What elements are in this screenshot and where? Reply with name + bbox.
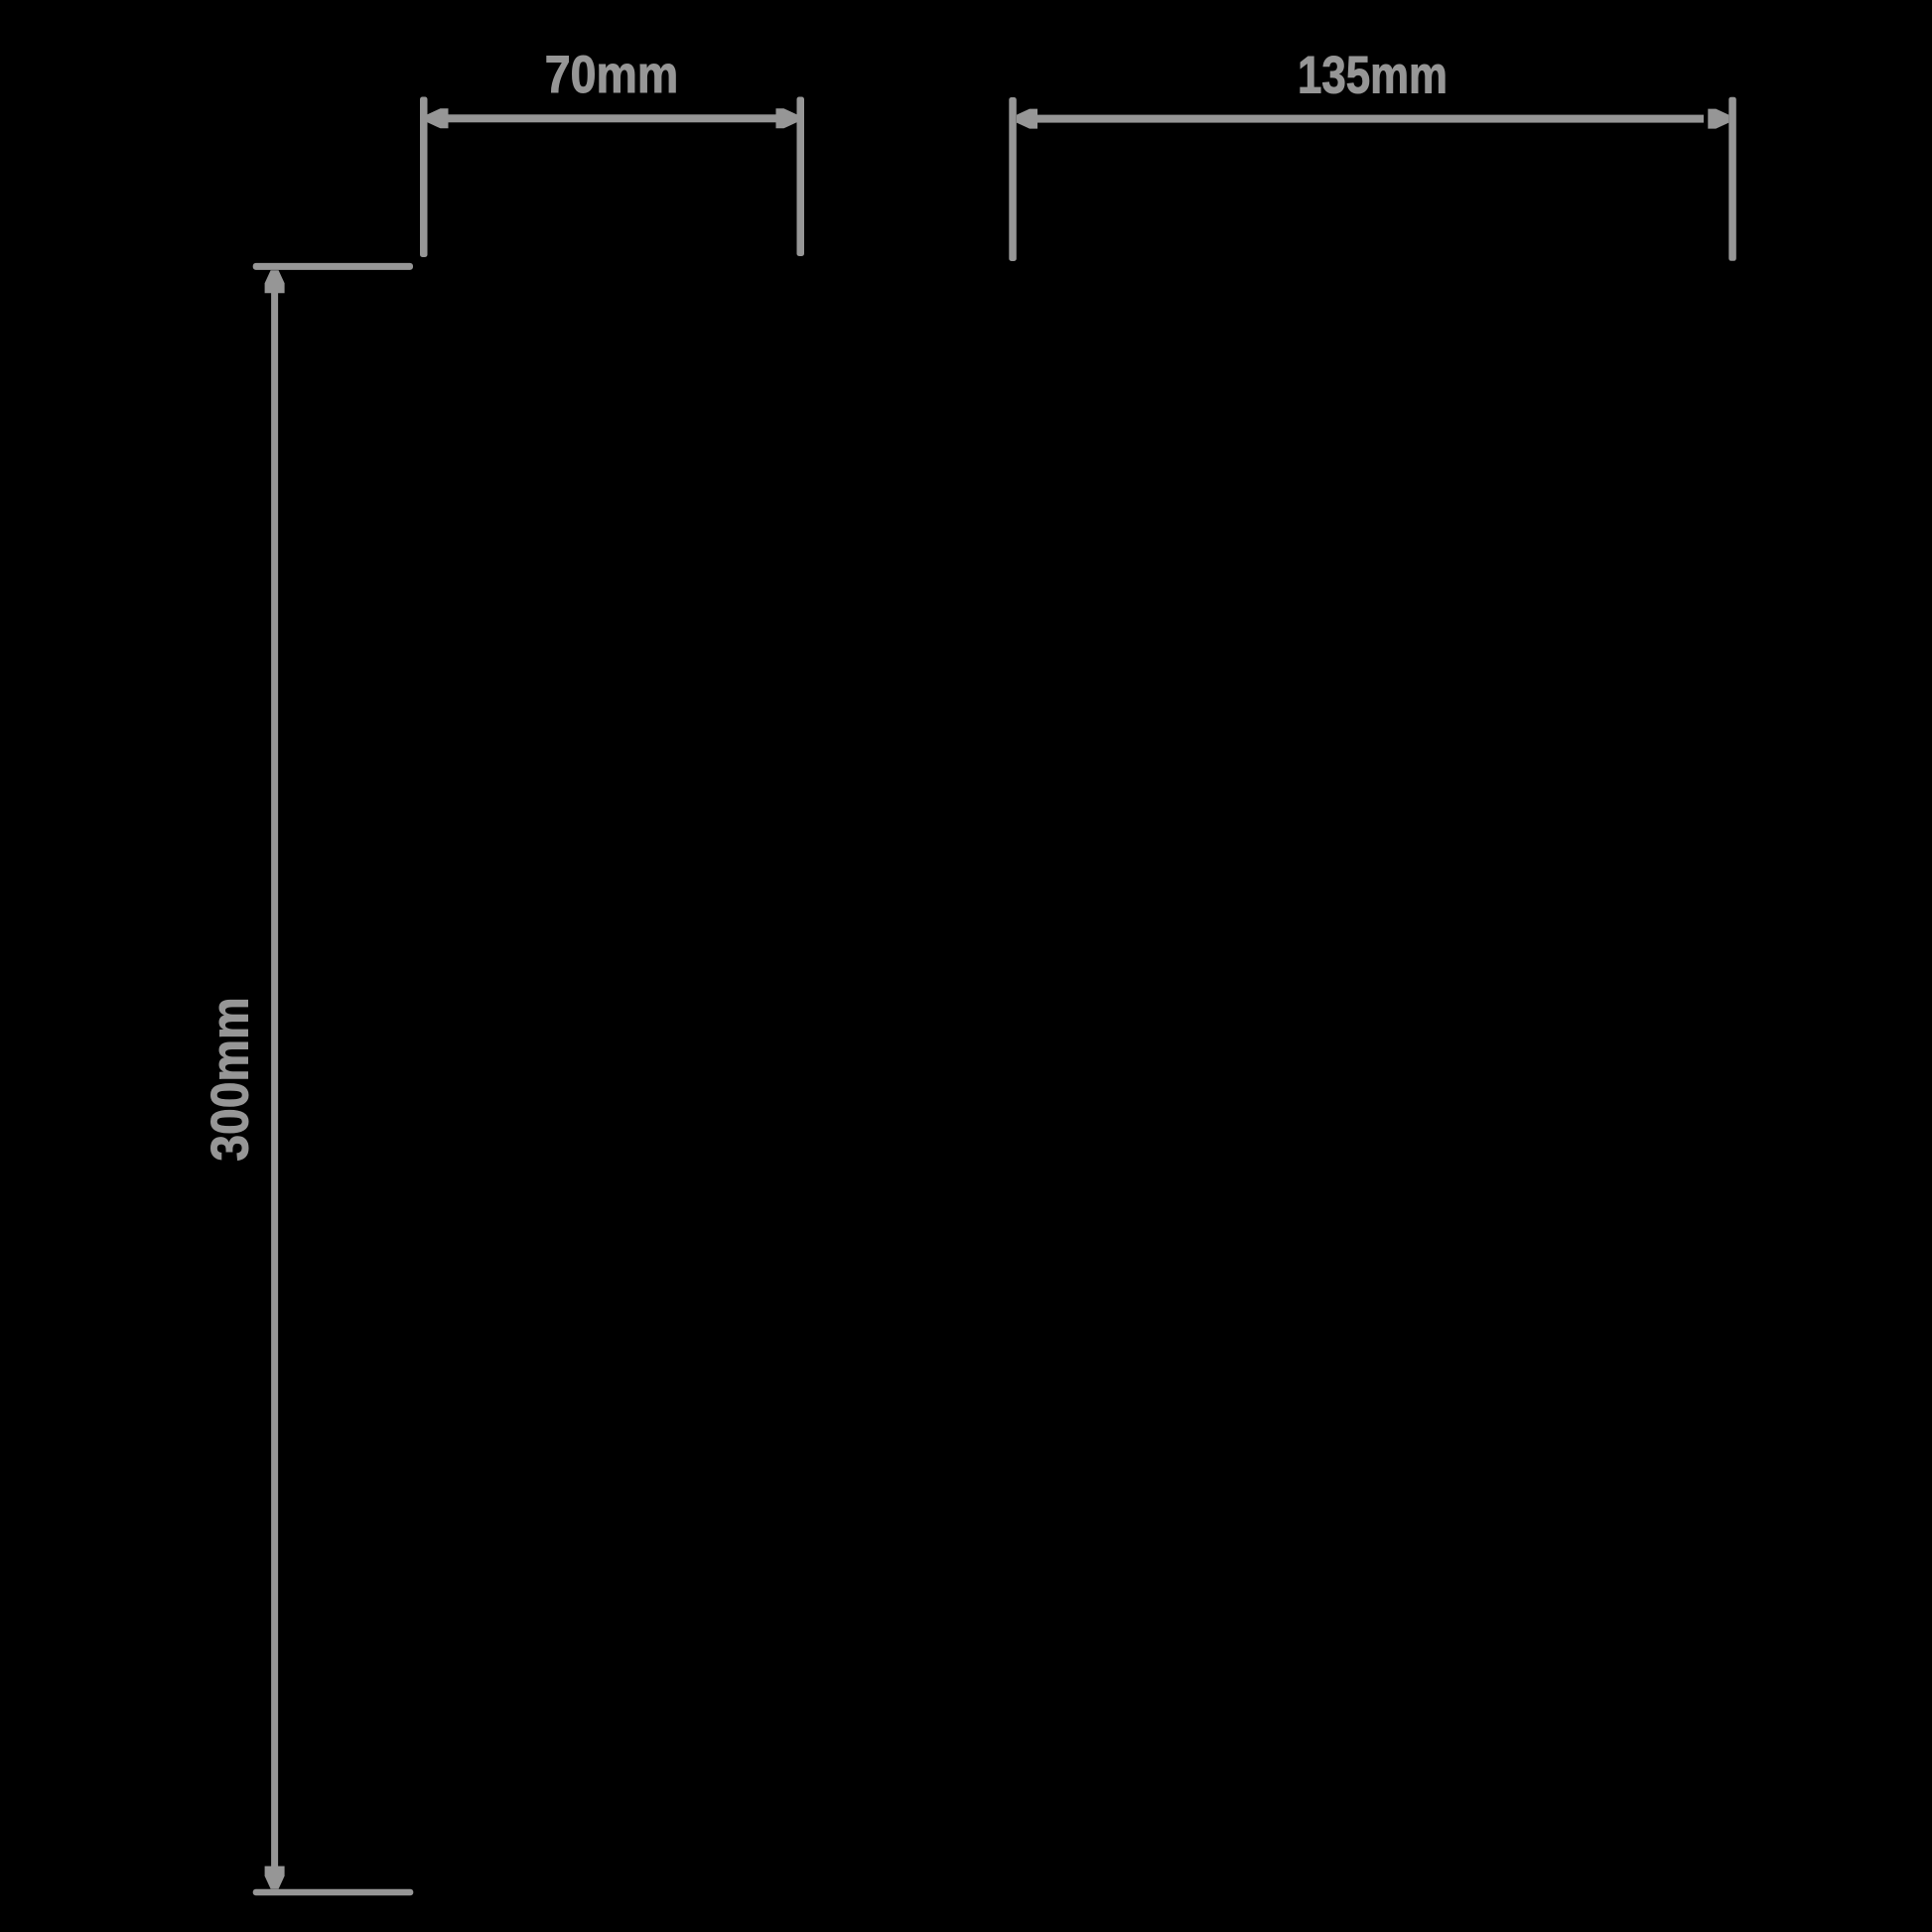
svg-text:300mm: 300mm [202, 997, 260, 1161]
svg-text:135mm: 135mm [1298, 47, 1448, 105]
svg-text:70mm: 70mm [545, 46, 679, 104]
